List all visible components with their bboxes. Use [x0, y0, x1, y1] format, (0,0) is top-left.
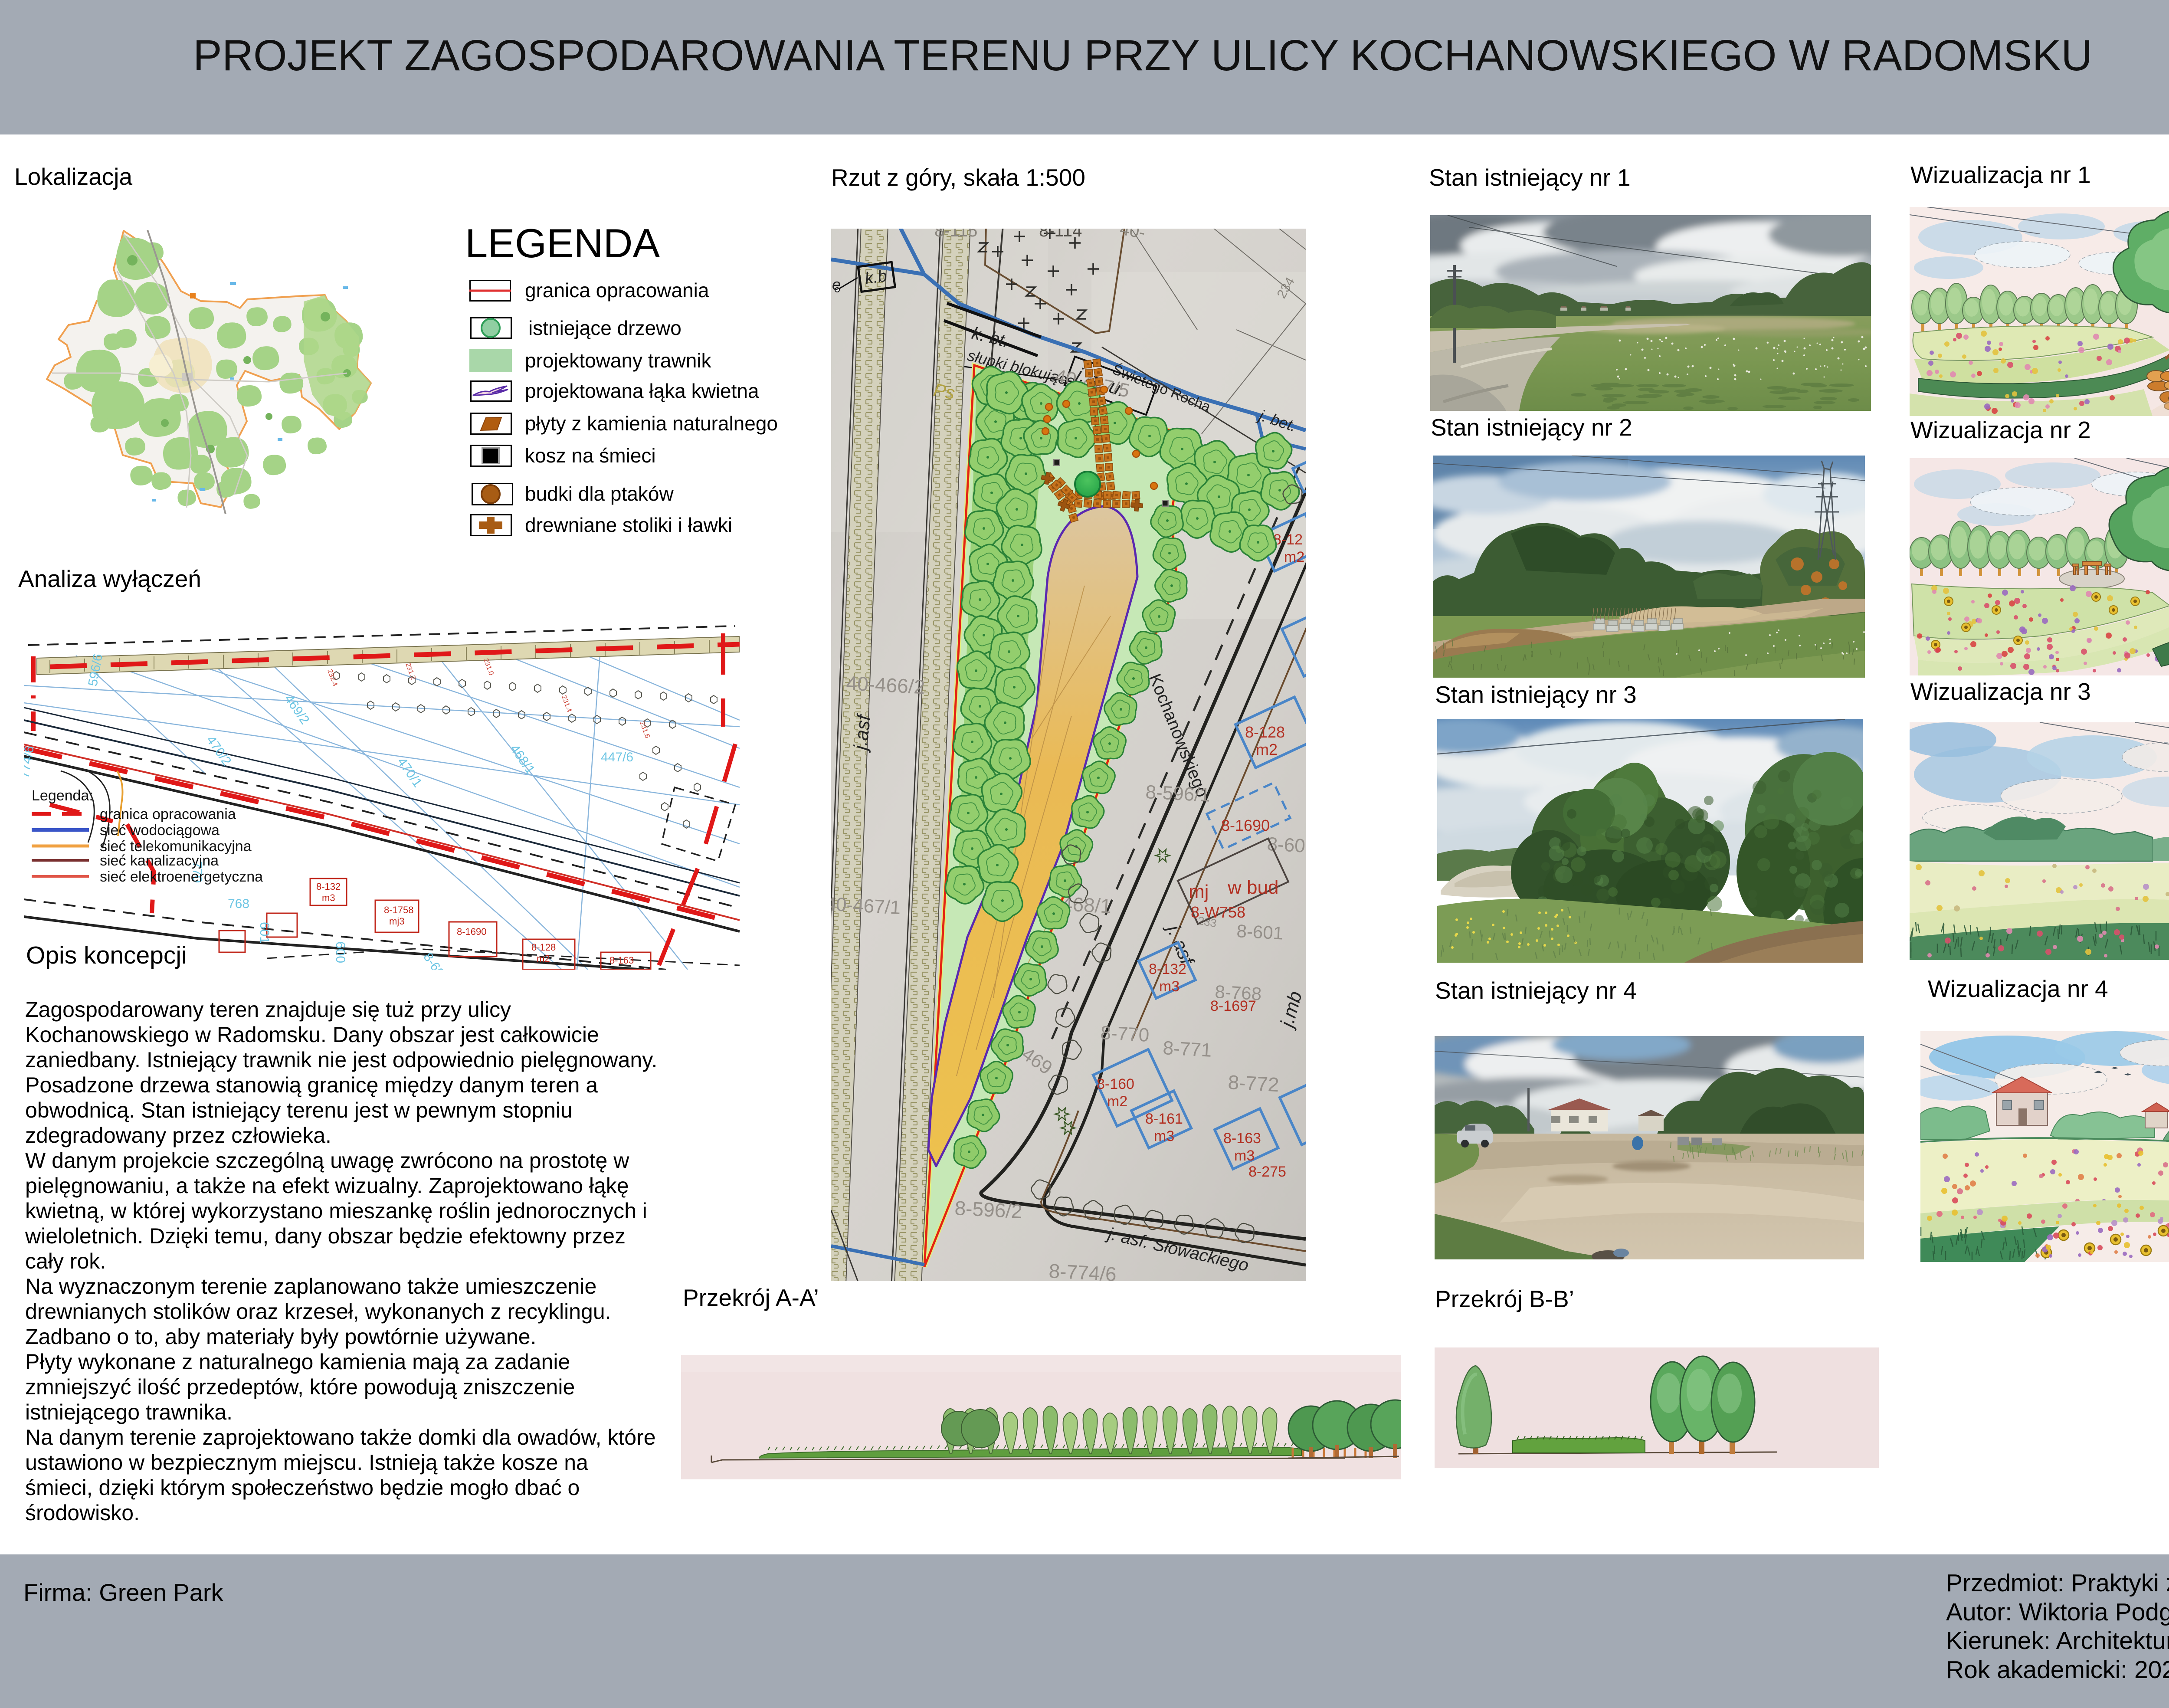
- svg-text:mj3: mj3: [389, 916, 404, 927]
- svg-text:sieć wodociągowa: sieć wodociągowa: [100, 822, 220, 839]
- svg-text:8-600: 8-600: [1266, 833, 1306, 857]
- svg-text:m2: m2: [1284, 549, 1304, 565]
- svg-text:m3: m3: [322, 892, 335, 903]
- svg-text:sieć elektroenergetyczna: sieć elektroenergetyczna: [100, 869, 263, 885]
- svg-text:e: e: [832, 275, 841, 293]
- svg-text:8-W758: 8-W758: [1191, 903, 1245, 921]
- svg-text:8-115: 8-115: [934, 229, 977, 240]
- svg-text:600: 600: [333, 941, 347, 963]
- svg-text:m2: m2: [1256, 741, 1278, 758]
- svg-text:8-163: 8-163: [609, 955, 634, 966]
- svg-text:8-163: 8-163: [1223, 1130, 1261, 1147]
- svg-text:j.asf: j.asf: [850, 712, 875, 753]
- svg-text:601: 601: [257, 922, 272, 944]
- svg-text:40-467/1: 40-467/1: [831, 893, 901, 918]
- svg-text:8-275: 8-275: [1248, 1164, 1286, 1180]
- svg-text:m3: m3: [1234, 1147, 1255, 1164]
- svg-text:768: 768: [228, 897, 249, 911]
- svg-text:m3: m3: [1154, 1128, 1174, 1144]
- svg-text:8-128: 8-128: [1245, 723, 1285, 741]
- svg-text:231.4: 231.4: [560, 695, 573, 714]
- svg-text:8-114: 8-114: [1039, 229, 1082, 240]
- svg-text:8-132: 8-132: [316, 881, 341, 892]
- svg-text:8-161: 8-161: [1145, 1111, 1183, 1127]
- svg-text:Ps: Ps: [932, 380, 956, 403]
- svg-text:8-601: 8-601: [1236, 921, 1284, 944]
- svg-text:8-771: 8-771: [1162, 1037, 1212, 1061]
- svg-text:w bud: w bud: [1227, 877, 1278, 898]
- svg-text:sieć kanalizacyjna: sieć kanalizacyjna: [100, 852, 219, 869]
- svg-text:8-774/6: 8-774/6: [1048, 1259, 1117, 1281]
- svg-text:774/6: 774/6: [24, 745, 37, 780]
- svg-text:m3: m3: [1159, 978, 1180, 995]
- svg-text:8-1690: 8-1690: [1221, 816, 1270, 834]
- svg-text:8-12: 8-12: [1273, 531, 1303, 548]
- svg-text:m2: m2: [537, 953, 550, 964]
- svg-text:8-132: 8-132: [1149, 961, 1186, 977]
- svg-text:232.4: 232.4: [326, 669, 339, 688]
- svg-text:8-596/1: 8-596/1: [1145, 781, 1211, 806]
- svg-text:8-160: 8-160: [1097, 1076, 1134, 1092]
- svg-text:k.b: k.b: [864, 267, 888, 288]
- svg-text:Legenda:: Legenda:: [32, 787, 93, 804]
- svg-text:469/2: 469/2: [282, 692, 312, 727]
- svg-text:8-1697: 8-1697: [1210, 998, 1256, 1014]
- svg-text:8-596/2: 8-596/2: [954, 1197, 1023, 1223]
- svg-text:468/1: 468/1: [507, 742, 537, 777]
- svg-text:470/1: 470/1: [394, 755, 425, 790]
- svg-text:8-1690: 8-1690: [457, 926, 487, 937]
- svg-text:40-466/2: 40-466/2: [845, 672, 925, 698]
- svg-text:granica opracowania: granica opracowania: [100, 806, 236, 823]
- svg-text:8-1758: 8-1758: [384, 905, 414, 915]
- svg-text:447/6: 447/6: [601, 750, 633, 764]
- svg-text:231.6: 231.6: [638, 721, 651, 740]
- svg-text:8-128: 8-128: [531, 942, 556, 953]
- svg-text:m2: m2: [1107, 1093, 1127, 1110]
- svg-text:231.2: 231.2: [404, 662, 417, 681]
- svg-text:8-770: 8-770: [1100, 1022, 1150, 1046]
- svg-text:8-772: 8-772: [1227, 1071, 1279, 1096]
- svg-text:mj: mj: [1189, 881, 1209, 902]
